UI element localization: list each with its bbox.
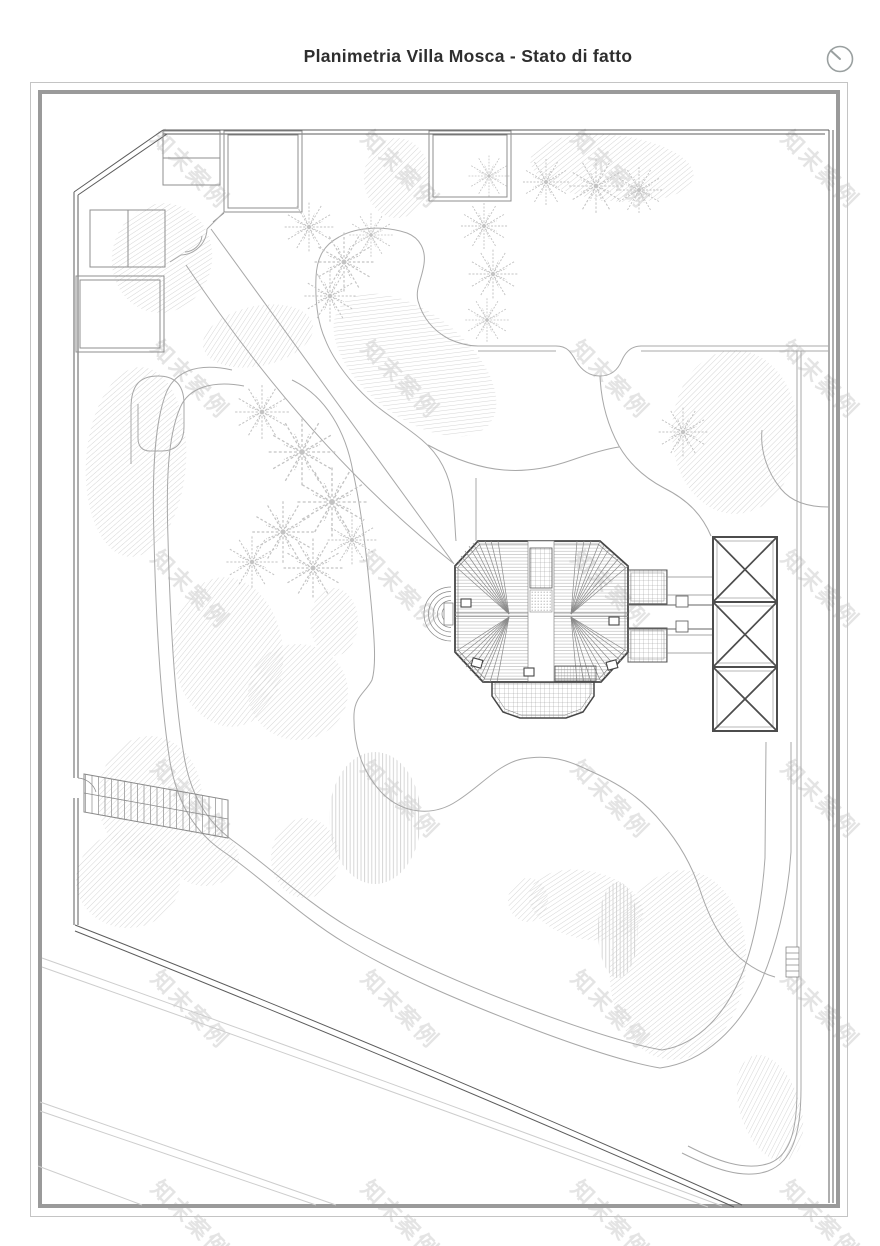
- watermark-text: 知末案例: [565, 335, 654, 424]
- watermark-text: 知末案例: [355, 965, 444, 1054]
- roof-grille: [555, 666, 596, 681]
- watermark-text: 知末案例: [145, 1175, 234, 1246]
- palm-tree-icon: [314, 232, 374, 292]
- watermark-text: 知末案例: [775, 125, 864, 214]
- watermark-text: 知末案例: [565, 1175, 654, 1246]
- palm-tree-icon: [468, 155, 510, 197]
- palm-tree-icon: [349, 213, 393, 257]
- villa-building: [424, 541, 713, 718]
- palm-tree-icon: [461, 203, 508, 250]
- palm-tree-icon: [252, 501, 314, 563]
- pergola-trellis: [713, 537, 777, 731]
- watermark-text: 知末案例: [775, 1175, 864, 1246]
- palm-tree-icon: [297, 467, 367, 537]
- watermark-text: 知末案例: [355, 545, 444, 634]
- palm-tree-icon: [268, 418, 336, 486]
- watermark-text: 知末案例: [565, 755, 654, 844]
- watermark-text: 知末案例: [355, 1175, 444, 1246]
- watermark-text: 知末案例: [775, 965, 864, 1054]
- drawing-page: Planimetria Villa Mosca - Stato di fatto: [0, 0, 880, 1246]
- watermark-text: 知末案例: [775, 545, 864, 634]
- east-steps-detail: [786, 947, 799, 977]
- watermark-text: 知末案例: [145, 125, 234, 214]
- palm-tree-icon: [284, 202, 333, 251]
- palm-tree-icon: [468, 249, 517, 298]
- palm-tree-icon: [465, 298, 509, 342]
- watermark-text: 知末案例: [775, 755, 864, 844]
- villa-apse: [492, 682, 594, 718]
- watermark-text: 知末案例: [145, 965, 234, 1054]
- site-plan-canvas: 知末案例知末案例知末案例知末案例知末案例知末案例知末案例知末案例知末案例知末案例…: [0, 0, 880, 1246]
